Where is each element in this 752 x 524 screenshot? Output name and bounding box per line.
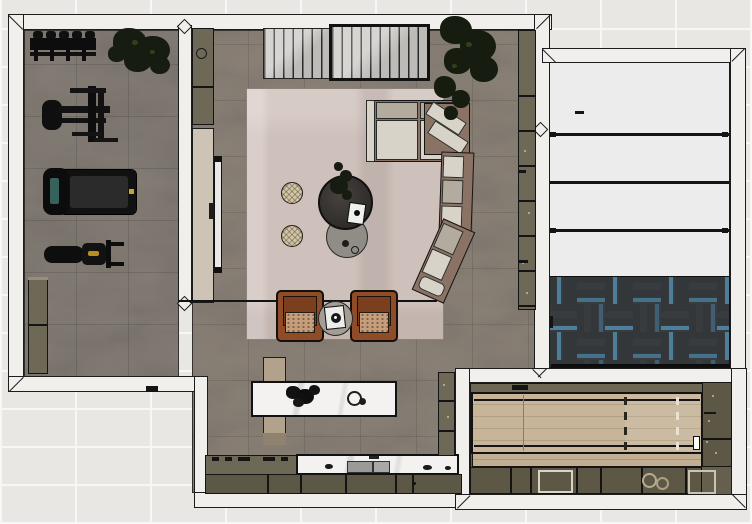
dumbbell [72, 31, 82, 39]
herringbone-mat [549, 276, 730, 368]
games-side-cabinets [702, 382, 732, 467]
kitchen-base-cabinets [205, 474, 462, 494]
bowl [359, 398, 366, 405]
lane-bottom-strip [472, 453, 702, 467]
floor-plan-render [0, 0, 752, 524]
wall-console [214, 156, 222, 273]
pouf [281, 225, 303, 247]
faucet [369, 456, 379, 459]
lane-corner-marker [694, 437, 699, 449]
living-wall-cabinet-strip [518, 30, 536, 310]
leather-armchair [351, 291, 397, 341]
rack-leg [34, 50, 38, 61]
wall-games-bottom [455, 494, 747, 510]
panel-separator [549, 133, 729, 136]
dumbbell [85, 31, 95, 39]
lane-dashed-line-light [676, 396, 679, 450]
panel-separator [549, 181, 729, 184]
pouf [281, 182, 303, 204]
wall-games-right [731, 368, 747, 510]
panel-end-cap [722, 228, 728, 233]
rack-leg [50, 50, 54, 61]
panel-end-cap [550, 132, 556, 137]
decor-frame [688, 470, 716, 494]
wall-divider [178, 25, 192, 303]
wall-garage-right [730, 48, 746, 384]
decor-frame [538, 470, 573, 493]
mat-edge-line [551, 364, 729, 367]
gym-storage-cabinet [28, 277, 48, 374]
rack-leg [82, 50, 86, 61]
sink-counter [297, 455, 458, 474]
panel-end-cap [722, 132, 728, 137]
games-top-ledge [470, 383, 732, 393]
kitchen-tall-cabinet [438, 372, 455, 456]
treadmill-logo [129, 189, 134, 194]
divider-top-cabinet [192, 28, 214, 125]
decor-scribble [656, 477, 669, 490]
marble-island [252, 382, 396, 416]
dumbbell-rack-shelf [30, 52, 96, 56]
bench-logo [88, 251, 99, 256]
leather-armchair [277, 291, 323, 341]
panel-separator [549, 229, 729, 232]
dumbbell [33, 31, 43, 39]
dumbbell-rack [30, 38, 96, 50]
wall-mark [146, 386, 158, 392]
treadmill-display [50, 178, 59, 204]
rack-leg [66, 50, 70, 61]
wall-left [8, 14, 24, 392]
wall-games-top [455, 368, 747, 383]
garage-panel-area [548, 62, 730, 278]
wall-garage-top [542, 48, 746, 63]
framed-slatted-cabinet [329, 24, 430, 81]
wall-living-garage [534, 14, 550, 384]
games-bottom-cabinets [470, 467, 702, 494]
panel-handle [575, 111, 584, 114]
slatted-cabinet [263, 28, 330, 79]
wall-gym-bottom [8, 376, 208, 392]
wall-bottom-center [194, 492, 470, 508]
wood-lane-floor [472, 393, 702, 453]
decor-scribble [642, 473, 657, 488]
dumbbell [46, 31, 56, 39]
dumbbell [59, 31, 69, 39]
panel-end-cap [550, 228, 556, 233]
round-side-table [318, 301, 353, 336]
lane-dashed-line-dark [624, 396, 627, 450]
